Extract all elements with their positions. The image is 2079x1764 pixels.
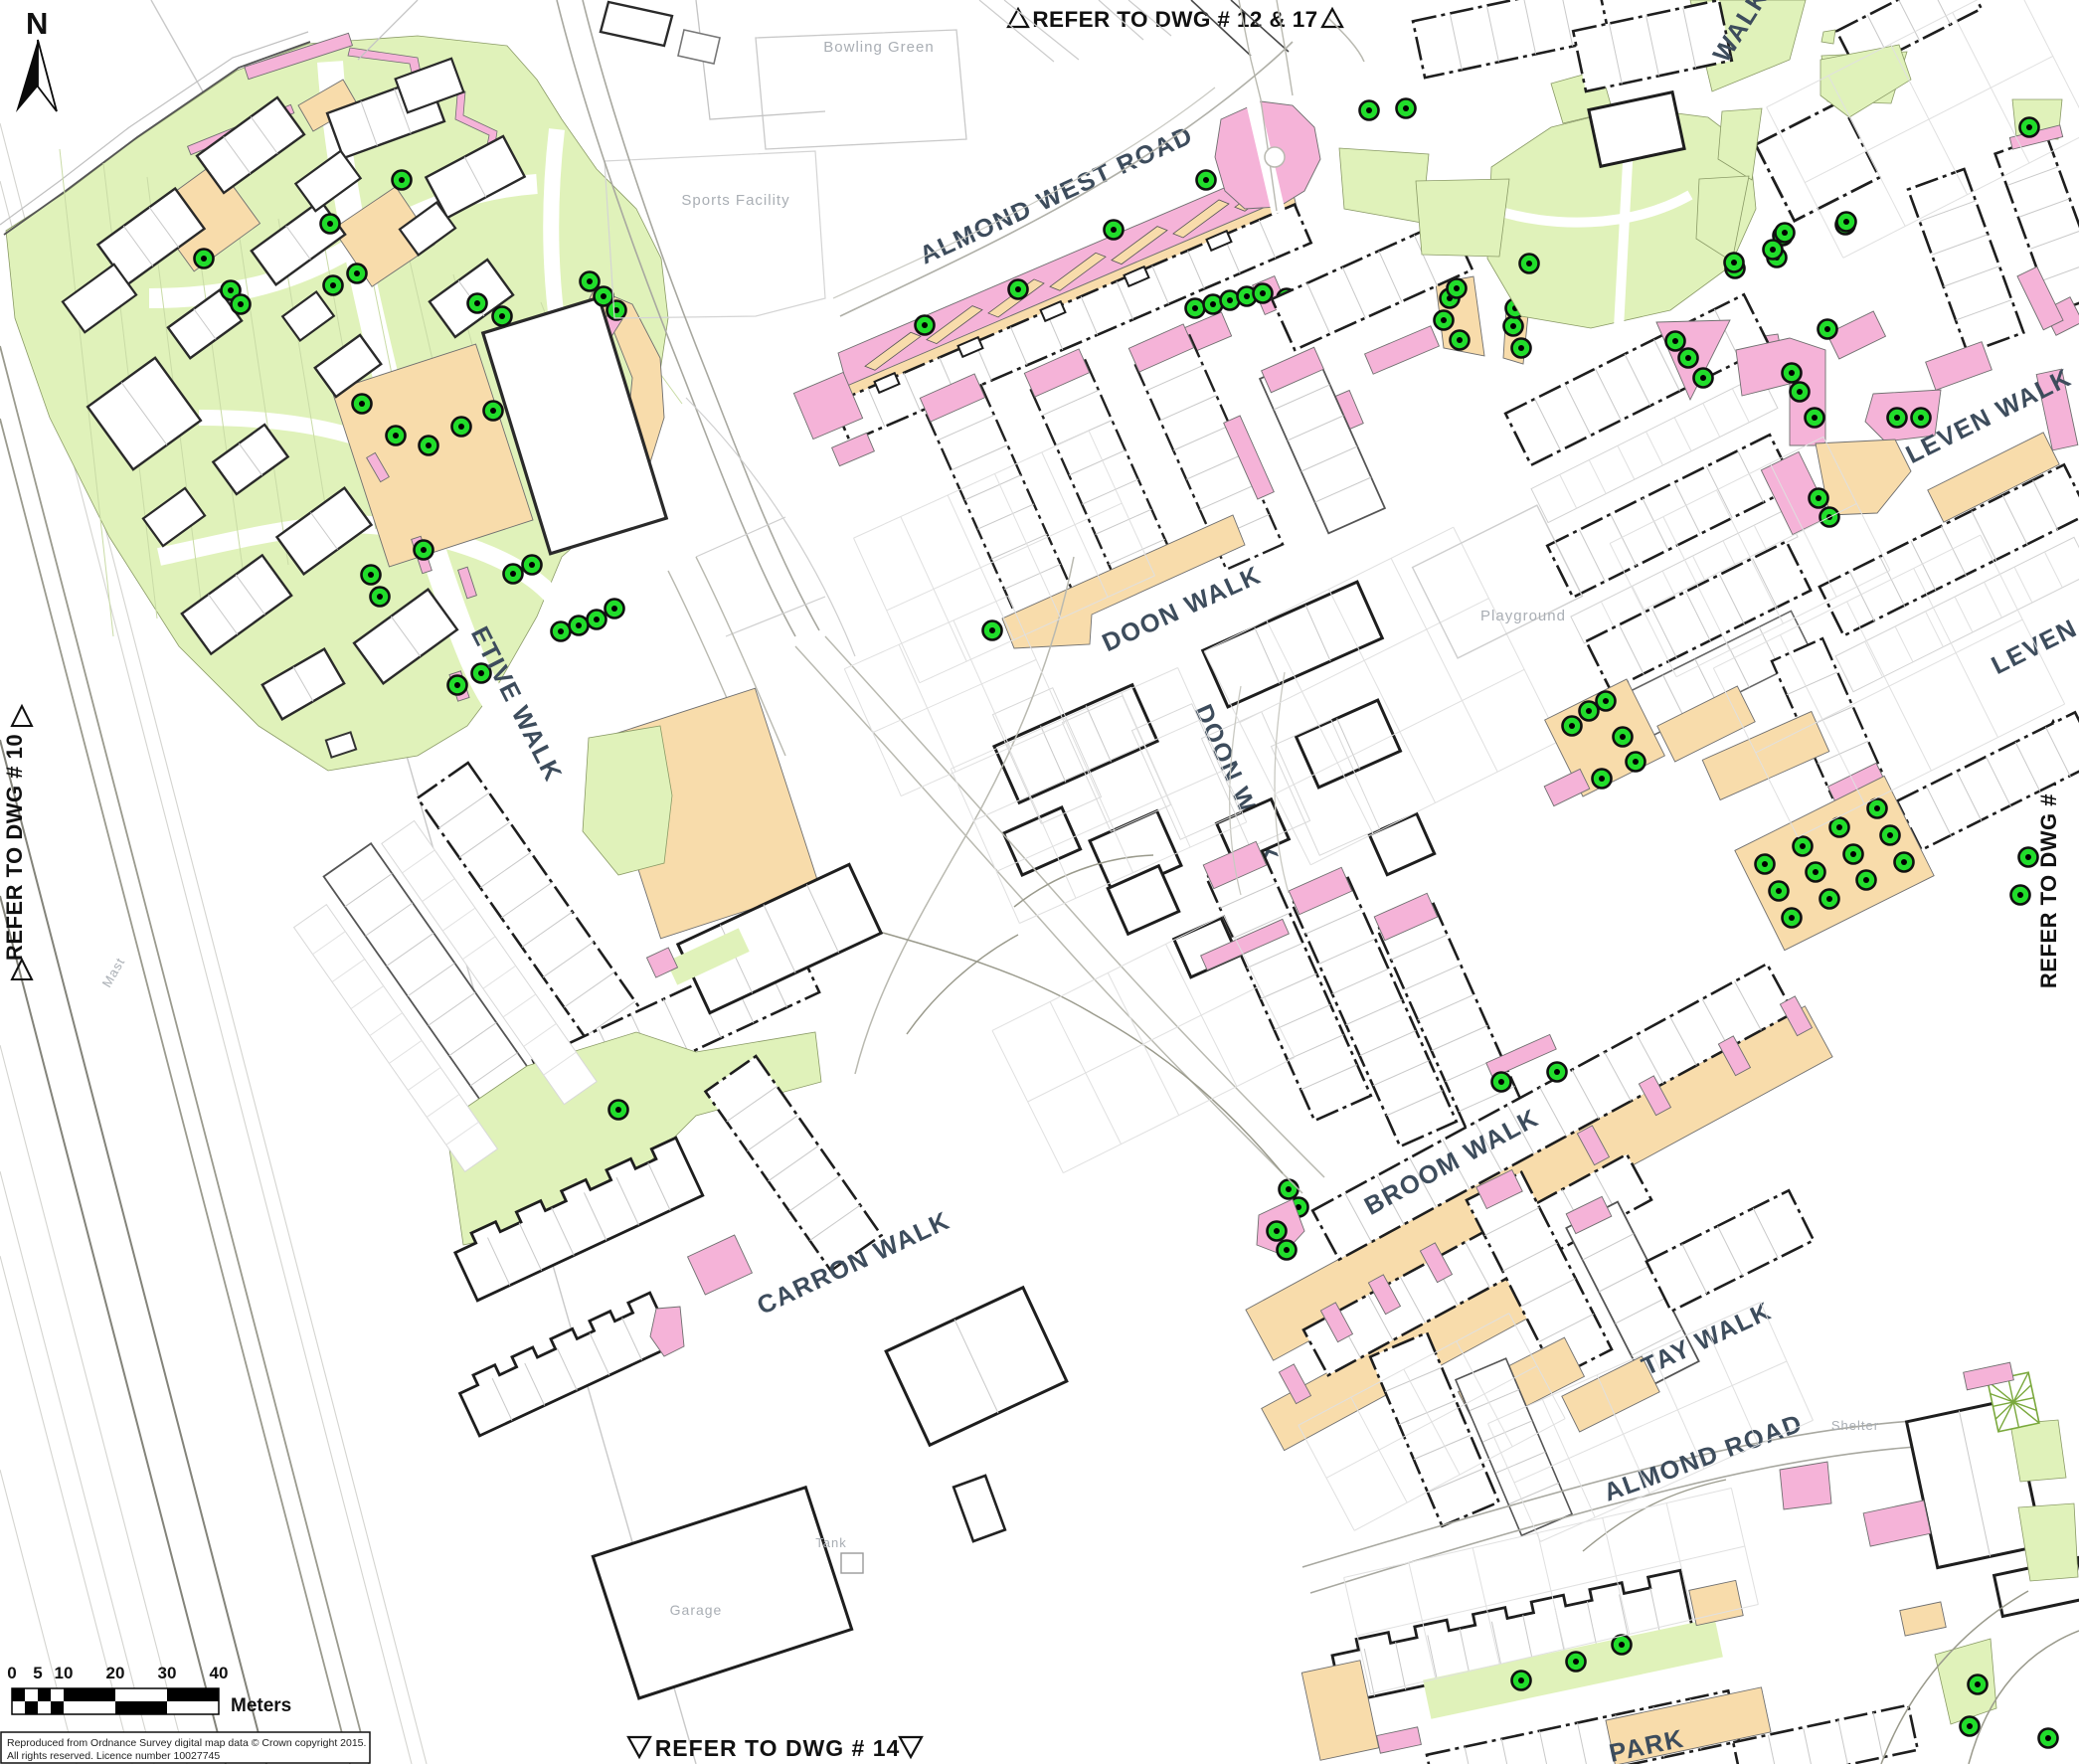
svg-text:Reproduced from Ordnance Surve: Reproduced from Ordnance Survey digital … — [7, 1737, 366, 1749]
svg-text:20: 20 — [106, 1664, 125, 1682]
svg-text:Sports Facility: Sports Facility — [681, 192, 789, 209]
svg-text:Shelter: Shelter — [1831, 1418, 1879, 1433]
svg-text:All rights reserved. Licence n: All rights reserved. Licence number 1002… — [7, 1750, 220, 1762]
svg-text:Meters: Meters — [231, 1695, 291, 1716]
svg-text:Playground: Playground — [1480, 608, 1566, 624]
svg-text:REFER TO DWG # 10: REFER TO DWG # 10 — [2, 734, 27, 961]
svg-text:REFER TO DWG # 14: REFER TO DWG # 14 — [655, 1735, 901, 1761]
svg-text:REFER TO DWG # 12 & 17: REFER TO DWG # 12 & 17 — [1032, 7, 1317, 32]
svg-text:Tank: Tank — [815, 1535, 846, 1550]
svg-text:40: 40 — [210, 1664, 229, 1682]
svg-text:5: 5 — [33, 1664, 42, 1682]
svg-text:REFER TO DWG # 18: REFER TO DWG # 18 — [2036, 762, 2061, 988]
svg-text:N: N — [26, 6, 48, 41]
svg-text:Garage: Garage — [670, 1602, 723, 1618]
svg-text:30: 30 — [158, 1664, 177, 1682]
svg-text:Bowling Green: Bowling Green — [823, 39, 934, 56]
svg-text:10: 10 — [55, 1664, 74, 1682]
svg-text:0: 0 — [7, 1664, 16, 1682]
